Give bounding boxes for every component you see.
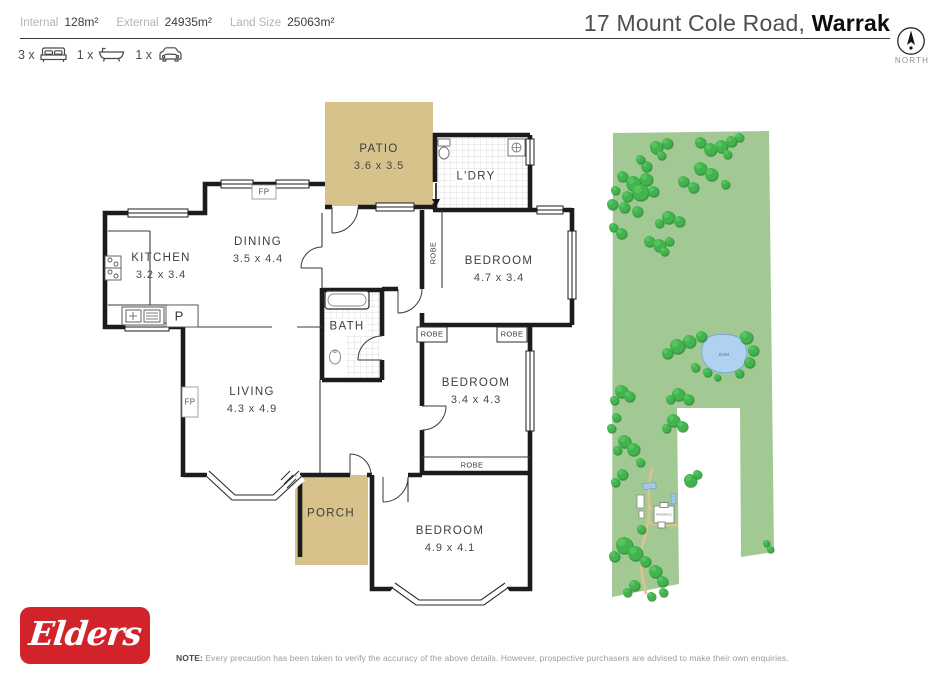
room-label-bedroom3: BEDROOM 4.9 x 4.1 <box>416 523 485 557</box>
elders-logo-text: Elders <box>27 614 143 657</box>
fireplace-boxes <box>182 185 276 417</box>
laundry-sink <box>508 139 525 156</box>
room-label-porch: PORCH <box>307 505 355 522</box>
toilet <box>438 139 450 159</box>
robe-label-2: ROBE <box>501 330 524 339</box>
dam-label: DAM <box>719 352 729 357</box>
kitchen-bench <box>122 305 198 327</box>
room-label-kitchen: KITCHEN 3.2 x 3.4 <box>131 250 191 284</box>
floorplan <box>105 102 576 606</box>
pantry-label: P <box>175 309 184 324</box>
room-label-bath: BATH <box>326 318 367 335</box>
room-label-patio: PATIO 3.6 x 3.5 <box>354 141 404 175</box>
disclaimer-note: NOTE: Every precaution has been taken to… <box>176 653 789 663</box>
fireplace-label-dining: FP <box>258 188 269 197</box>
bay-window-bedroom3 <box>391 583 509 606</box>
note-text: Every precaution has been taken to verif… <box>203 653 789 663</box>
floorplan-svg: DAM RESIDENCE <box>0 0 946 675</box>
land-plot: DAM RESIDENCE <box>607 131 775 602</box>
robe-label-1: ROBE <box>421 330 444 339</box>
room-label-bedroom2: BEDROOM 3.4 x 4.3 <box>442 375 511 409</box>
stove-cooktop <box>105 256 121 280</box>
bath-basin <box>330 350 341 364</box>
fireplace-label-living: FP <box>184 398 195 407</box>
robe-label-3: ROBE <box>461 461 484 470</box>
room-label-living: LIVING 4.3 x 4.9 <box>227 384 277 418</box>
residence-label: RESIDENCE <box>656 513 672 517</box>
robe-label-vertical: ROBE <box>429 242 438 265</box>
bathtub <box>325 291 369 309</box>
room-label-laundry: L'DRY <box>454 168 497 185</box>
note-label: NOTE: <box>176 653 203 663</box>
garden-steps <box>671 494 676 504</box>
floorplan-page: Internal 128m² External 24935m² Land Siz… <box>0 0 946 675</box>
room-label-dining: DINING 3.5 x 4.4 <box>233 234 283 268</box>
room-label-bedroom1: BEDROOM 4.7 x 3.4 <box>465 253 534 287</box>
water-tank <box>643 482 656 489</box>
elders-logo: Elders <box>20 607 150 664</box>
